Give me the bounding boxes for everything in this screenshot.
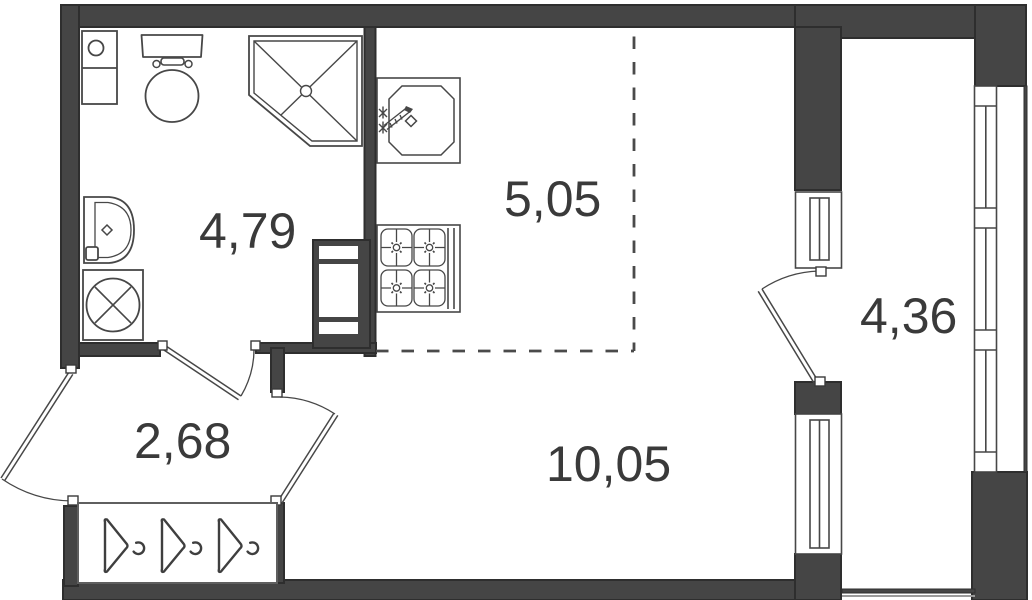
svg-text:5,05: 5,05 <box>504 171 601 227</box>
svg-text:2,68: 2,68 <box>134 413 231 469</box>
svg-text:4,36: 4,36 <box>860 288 957 344</box>
svg-text:4,79: 4,79 <box>199 203 296 259</box>
svg-text:10,05: 10,05 <box>546 436 671 492</box>
